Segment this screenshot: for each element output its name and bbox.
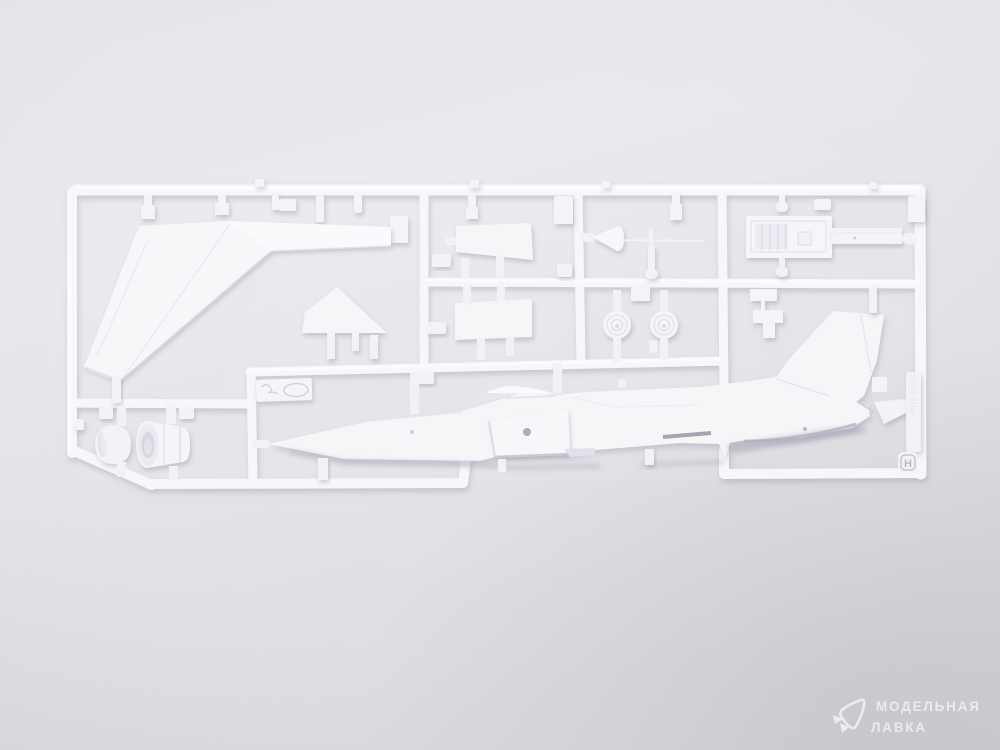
svg-text:H: H	[904, 458, 912, 470]
svg-text:ЛАВКА: ЛАВКА	[871, 720, 927, 735]
svg-text:МОДЕЛЬНАЯ: МОДЕЛЬНАЯ	[876, 699, 981, 714]
svg-text:1/72-F16A: 1/72-F16A	[909, 380, 916, 415]
